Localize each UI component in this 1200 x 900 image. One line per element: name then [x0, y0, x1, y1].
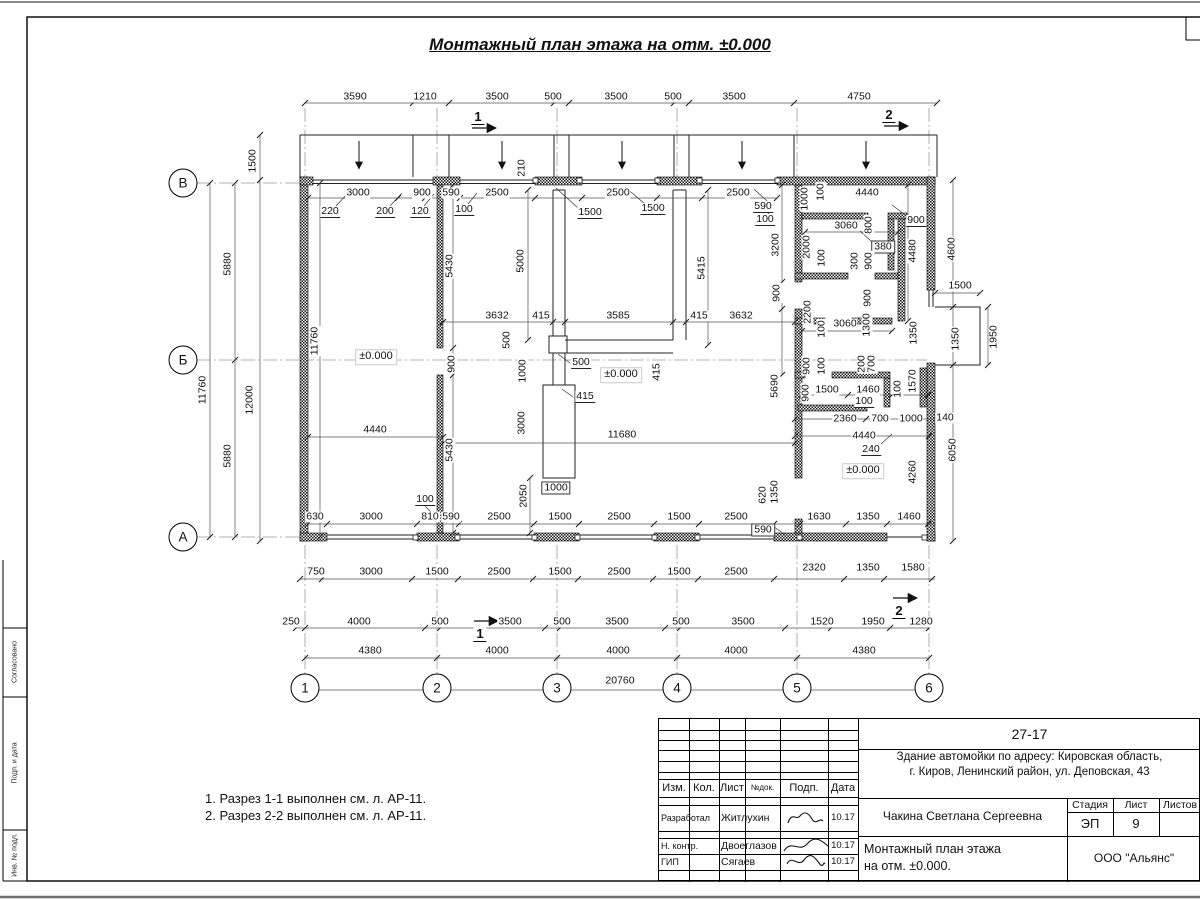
title-block: Изм. Кол. Лист №док. Подп. Дата Разработ… [658, 718, 1200, 881]
dimension-label: 5415 [696, 255, 707, 280]
dimension-label: 1350 [769, 479, 780, 504]
dimension-label: 5690 [769, 373, 780, 398]
axis-marker-2: 2 [423, 674, 452, 703]
dimension-label: 380 [871, 240, 895, 253]
dimension-label: 810 [420, 511, 440, 522]
dimension-label: 2500 [725, 187, 750, 198]
dimension-label: 1350 [950, 326, 961, 351]
dimension-label: 2000 [801, 234, 812, 259]
dimension-label: 900 [801, 356, 812, 376]
tb-date-ncontrol: 10.17 [828, 838, 858, 854]
dimension-label: 1500 [247, 148, 258, 173]
tb-doc-title-line2: на отм. ±0.000. [864, 857, 1064, 875]
dimension-label: 900 [906, 215, 926, 227]
dimension-label: 3500 [484, 91, 509, 102]
tb-doc-title-line1: Монтажный план этажа [864, 840, 1064, 858]
dimension-label: 1210 [412, 91, 437, 102]
dimension-label: 12000 [244, 384, 255, 415]
axis-marker-1: 1 [291, 674, 320, 703]
tb-document-code: 27-17 [858, 719, 1200, 749]
note-line: 2. Разрез 2-2 выполнен см. л. АР-11. [205, 808, 426, 825]
dimension-label: 120 [410, 206, 430, 218]
dimension-label: 3500 [497, 616, 522, 627]
dimension-label: 1500 [547, 511, 572, 522]
dimension-label: 11760 [309, 326, 320, 356]
dimension-label: 3590 [342, 91, 367, 102]
dimension-label: 500 [430, 616, 450, 627]
dimension-label: 500 [663, 91, 683, 102]
axis-marker-4: 4 [663, 674, 692, 703]
dimension-label: 100 [816, 319, 827, 339]
dimension-label: 1520 [809, 616, 834, 627]
dimension-label: 700 [870, 413, 890, 424]
dimension-label: 3632 [484, 310, 509, 321]
level-mark: ±0.000 [842, 463, 884, 479]
dimension-label: 240 [861, 444, 881, 456]
dimension-label: 1580 [900, 562, 925, 573]
dimension-label: 1350 [855, 511, 880, 522]
dimension-label: 1500 [947, 280, 972, 291]
dimension-label: 3500 [604, 616, 629, 627]
dimension-label: 2500 [723, 511, 748, 522]
dimension-label: 3500 [730, 616, 755, 627]
dimension-label: 900 [446, 354, 457, 374]
dimension-label: 750 [306, 566, 326, 577]
dimension-label: 4000 [723, 645, 748, 656]
dimension-label: 4380 [357, 645, 382, 656]
dimension-label: 3500 [603, 91, 628, 102]
dimension-label: 4000 [605, 645, 630, 656]
dimension-label: 1460 [896, 511, 921, 522]
axis-marker-Б: Б [169, 346, 198, 375]
dimension-label: 4260 [907, 459, 918, 484]
tb-name-developer: Житлухин [721, 805, 781, 831]
dimension-label: 415 [575, 391, 595, 403]
dimension-label: 500 [501, 330, 512, 350]
axis-marker-3: 3 [543, 674, 572, 703]
dimension-label: 3000 [345, 187, 370, 198]
dimension-label: 1350 [908, 320, 919, 345]
dimension-label: 5000 [515, 248, 526, 273]
tb-role-gip: ГИП [661, 854, 719, 870]
axis-marker-А: А [169, 523, 198, 552]
tb-stage-label: Стадия [1067, 798, 1113, 812]
dimension-label: 4440 [851, 430, 876, 441]
dimension-label: 415 [651, 362, 662, 382]
section-mark-label: 2 [882, 107, 895, 123]
dimension-label: 1300 [861, 312, 872, 337]
dimension-label: 3060 [833, 220, 858, 231]
dimension-label: 3000 [358, 566, 383, 577]
tb-col-kol: Кол. [689, 779, 719, 797]
dimension-label: 700 [866, 354, 877, 374]
dimension-label: 415 [689, 310, 709, 321]
dimension-label: 620 [757, 485, 768, 505]
dimension-label: 4380 [851, 645, 876, 656]
tb-col-list: Лист [719, 779, 745, 797]
dimension-label: 100 [854, 396, 874, 408]
dimension-label: 590 [751, 523, 775, 536]
tb-name-ncontrol: Двоеглазов [721, 838, 783, 854]
dimension-label: 2500 [486, 566, 511, 577]
dimension-label: 100 [816, 248, 827, 268]
tb-col-data: Дата [828, 779, 858, 797]
dimension-label: 2500 [606, 511, 631, 522]
tb-col-ndoc: №док. [745, 779, 780, 797]
dimension-label: 1500 [547, 566, 572, 577]
dimension-label: 3632 [728, 310, 753, 321]
level-mark: ±0.000 [600, 367, 642, 383]
tb-sheets-label: Листов [1159, 798, 1200, 812]
dimension-label: 2050 [518, 483, 529, 508]
dimension-label: 5430 [444, 253, 455, 278]
dimension-label: 2360 [832, 413, 857, 424]
dimension-label: 2200 [802, 299, 813, 324]
dimension-label: 1500 [424, 566, 449, 577]
tb-name-gip: Сягаев [721, 854, 783, 870]
dimension-label: 3060 [832, 318, 857, 329]
tb-person: Чакина Светлана Сергеевна [858, 798, 1067, 836]
dimension-label: 1280 [908, 616, 933, 627]
dimension-label: 4750 [846, 91, 871, 102]
dimension-label: 1000 [799, 186, 810, 211]
tb-role-ncontrol: Н. контр. [661, 838, 719, 854]
dimension-label: 20760 [604, 675, 635, 686]
dimension-label: 140 [935, 412, 955, 423]
dimension-label: 900 [412, 187, 432, 198]
note-line: 1. Разрез 1-1 выполнен см. л. АР-11. [205, 791, 426, 808]
dimension-label: 2500 [484, 187, 509, 198]
tb-col-izm: Изм. [659, 779, 689, 797]
dimension-label: 630 [305, 511, 325, 522]
dimension-label: 590 [753, 201, 773, 213]
dimension-label: 590 [441, 187, 461, 198]
signature-gip [783, 852, 827, 870]
dimension-label: 1350 [855, 562, 880, 573]
dimension-label: 5430 [444, 437, 455, 462]
dimension-label: 1000 [541, 481, 570, 494]
dimension-label: 6050 [947, 437, 958, 462]
dimension-label: 100 [454, 204, 474, 216]
dimension-label: 3585 [605, 310, 630, 321]
dimension-label: 4440 [854, 187, 879, 198]
dimension-label: 210 [516, 158, 527, 178]
dimension-label: 1500 [666, 511, 691, 522]
signature-developer [784, 807, 826, 829]
dimension-label: 1500 [640, 203, 665, 215]
tb-role-developer: Разработал [661, 805, 719, 831]
dimension-label: 900 [800, 383, 811, 403]
drawing-sheet: { "sheet_title": "Монтажный план этажа н… [0, 0, 1200, 900]
tb-date-developer: 10.17 [828, 805, 858, 831]
dimension-label: 3000 [516, 410, 527, 435]
dimension-label: 900 [771, 283, 782, 303]
dimension-label: 100 [892, 379, 903, 399]
dimension-label: 4480 [907, 238, 918, 263]
dimension-label: 100 [755, 214, 775, 226]
tb-address-line1: Здание автомойки по адресу: Кировская об… [858, 750, 1200, 766]
dimension-label: 100 [816, 356, 827, 376]
tb-sheet-value: 9 [1113, 812, 1159, 836]
tb-date-gip: 10.17 [828, 854, 858, 870]
margin-stamp-label: Согласовано [12, 641, 19, 683]
dimension-label: 1500 [666, 566, 691, 577]
tb-company: ООО "Альянс" [1067, 836, 1200, 882]
dimension-label: 11680 [607, 429, 637, 440]
dimension-label: 3000 [358, 511, 383, 522]
notes: 1. Разрез 1-1 выполнен см. л. АР-11.2. Р… [205, 791, 426, 825]
dimension-label: 415 [531, 310, 551, 321]
dimension-label: 1630 [806, 511, 831, 522]
dimension-label: 1950 [860, 616, 885, 627]
dimension-label: 3200 [770, 232, 781, 257]
dimension-label: 4000 [346, 616, 371, 627]
tb-col-podp: Подп. [780, 779, 828, 797]
dimension-label: 200 [375, 206, 395, 218]
dimension-label: 3500 [721, 91, 746, 102]
dimension-label: 590 [441, 511, 461, 522]
dimension-label: 4000 [484, 645, 509, 656]
tb-address-line2: г. Киров, Ленинский район, ул. Деповская… [858, 765, 1200, 781]
dimension-label: 4440 [362, 424, 387, 435]
dimension-label: 1570 [907, 368, 918, 393]
dimension-label: 11760 [197, 375, 208, 405]
dimension-label: 100 [415, 494, 435, 506]
dimension-label: 2500 [606, 566, 631, 577]
axis-marker-5: 5 [783, 674, 812, 703]
dimension-label: 500 [571, 357, 591, 369]
dimension-label: 1950 [988, 324, 999, 349]
dimension-label: 300 [849, 251, 860, 271]
dimension-label: 250 [281, 616, 301, 627]
section-mark-label: 1 [473, 626, 486, 642]
dimension-label: 900 [862, 288, 873, 308]
dimension-label: 5880 [222, 443, 233, 468]
dimension-label: 2500 [605, 187, 630, 198]
tb-sheet-label: Лист [1113, 798, 1159, 812]
dimension-label: 2320 [801, 562, 826, 573]
axis-marker-В: В [169, 169, 198, 198]
dimension-label: 4600 [946, 236, 957, 261]
dimension-label: 5880 [222, 251, 233, 276]
dimension-label: 1500 [577, 207, 602, 219]
dimension-label: 220 [320, 206, 340, 218]
dimension-label: 2500 [486, 511, 511, 522]
axis-marker-6: 6 [915, 674, 944, 703]
dimension-label: 500 [543, 91, 563, 102]
dimension-label: 2500 [723, 566, 748, 577]
level-mark: ±0.000 [355, 349, 397, 365]
dimension-label: 1500 [814, 384, 839, 395]
dimension-label: 500 [552, 616, 572, 627]
dimension-label: 900 [863, 251, 874, 271]
dimension-label: 800 [863, 215, 874, 235]
margin-stamp-label: Подп. и дата [12, 742, 19, 783]
section-mark-label: 2 [892, 603, 905, 619]
tb-stage-value: ЭП [1067, 812, 1113, 836]
section-mark-label: 1 [471, 109, 484, 125]
dimension-label: 500 [671, 616, 691, 627]
margin-stamp-label: Инв. № подл. [12, 833, 19, 877]
dimension-label: 100 [815, 182, 826, 202]
dimension-label: 1000 [517, 358, 528, 383]
dimension-label: 1460 [855, 384, 880, 395]
dimension-label: 1000 [898, 413, 923, 424]
